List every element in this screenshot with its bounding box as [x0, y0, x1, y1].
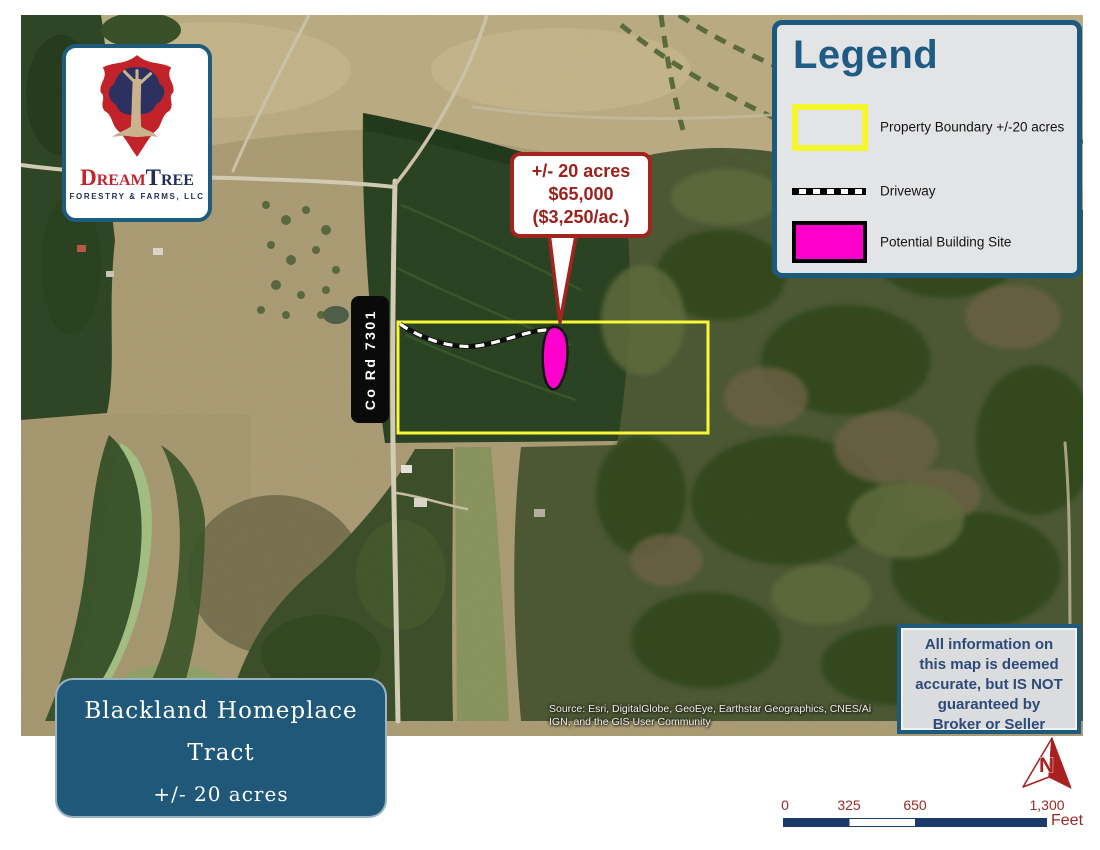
price-callout: +/- 20 acres $65,000 ($3,250/ac.)	[510, 152, 652, 238]
scale-unit: Feet	[1051, 812, 1083, 830]
dreamtree-logo: DreamTree FORESTRY & FARMS, LLC	[62, 44, 212, 222]
north-label: N	[1039, 754, 1054, 777]
legend-item-driveway: Driveway	[880, 184, 936, 199]
logo-subtitle: FORESTRY & FARMS, LLC	[66, 192, 208, 201]
legend-panel: Legend Property Boundary +/-20 acres Dri…	[772, 20, 1082, 278]
driveway-line	[400, 324, 552, 346]
building-site-polygon	[543, 327, 568, 390]
map-attribution: Source: Esri, DigitalGlobe, GeoEye, Eart…	[549, 703, 871, 729]
arrowhead-tree-logo-icon	[66, 52, 208, 169]
building-site-swatch-icon	[792, 221, 867, 263]
road-name-text: Co Rd 7301	[362, 309, 378, 410]
legend-item-boundary: Property Boundary +/-20 acres	[880, 120, 1064, 135]
scale-tick-1300: 1,300	[1029, 797, 1064, 813]
logo-word-tree: Tree	[146, 165, 194, 190]
attribution-line1: Source: Esri, DigitalGlobe, GeoEye, Eart…	[549, 703, 871, 716]
callout-acres: +/- 20 acres	[516, 160, 646, 183]
tract-title-box: Blackland Homeplace Tract +/- 20 acres P…	[55, 678, 387, 818]
disclaimer-line: All information on	[901, 635, 1077, 655]
scale-tick-325: 325	[837, 797, 860, 813]
callout-pointer	[548, 225, 578, 322]
disclaimer-line: guaranteed by	[901, 695, 1077, 715]
disclaimer-line: this map is deemed	[901, 655, 1077, 675]
tract-acreage: +/- 20 acres	[57, 774, 385, 814]
map-flyer-page: Source: Esri, DigitalGlobe, GeoEye, Eart…	[0, 0, 1100, 850]
scale-tick-650: 650	[903, 797, 926, 813]
attribution-line2: IGN, and the GIS User Community	[549, 716, 871, 729]
scale-bar-graphic	[783, 818, 1047, 827]
callout-price-per-acre: ($3,250/ac.)	[516, 206, 646, 229]
disclaimer-line: accurate, but IS NOT	[901, 675, 1077, 695]
legend-title: Legend	[793, 33, 1077, 78]
boundary-swatch-icon	[792, 104, 868, 151]
road-name-label: Co Rd 7301	[351, 296, 389, 423]
scale-tick-0: 0	[781, 797, 789, 813]
driveway-swatch-icon	[792, 188, 866, 195]
legend-item-building-site: Potential Building Site	[880, 235, 1011, 250]
north-arrow: N	[1015, 730, 1085, 800]
logo-word-dream: Dream	[80, 165, 146, 190]
tract-name: Blackland Homeplace Tract	[57, 690, 385, 774]
scale-bar: 0 325 650 1,300 Feet	[783, 797, 1083, 837]
disclaimer-box: All information on this map is deemed ac…	[897, 624, 1081, 734]
callout-price: $65,000	[516, 183, 646, 206]
logo-wordmark: DreamTree	[66, 167, 208, 189]
tract-location: Prentiss County, Mississippi	[57, 814, 385, 850]
